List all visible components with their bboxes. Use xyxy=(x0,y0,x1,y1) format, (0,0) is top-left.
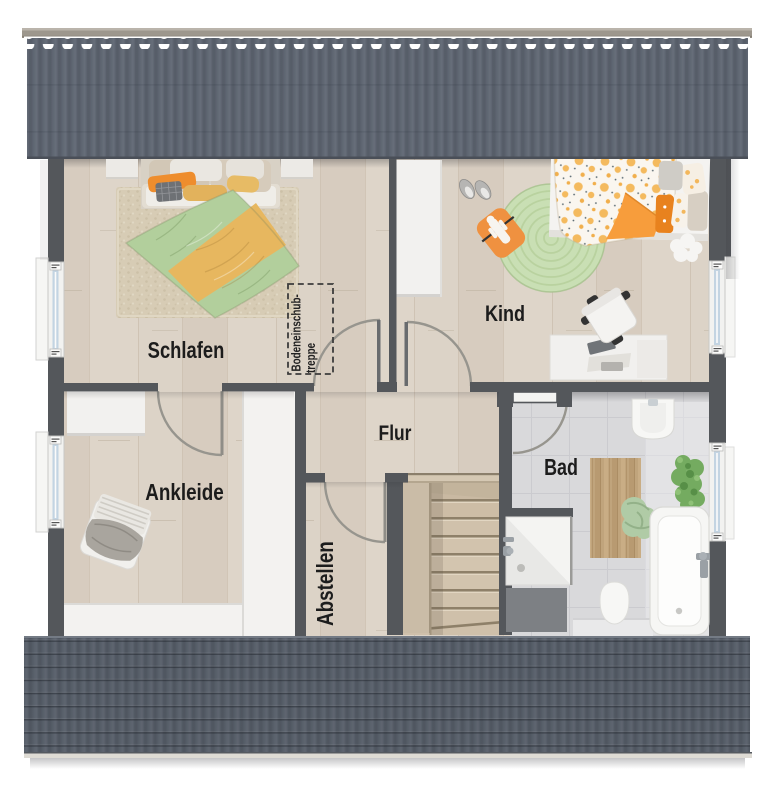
svg-text:Kind: Kind xyxy=(485,302,525,326)
svg-text:Flur: Flur xyxy=(379,423,412,446)
svg-text:Schlafen: Schlafen xyxy=(148,338,225,363)
svg-text:Bodeneinschub-: Bodeneinschub- xyxy=(291,294,304,371)
svg-text:Ankleide: Ankleide xyxy=(145,480,224,505)
svg-text:Abstellen: Abstellen xyxy=(313,541,338,626)
svg-text:treppe: treppe xyxy=(305,343,318,373)
svg-text:Bad: Bad xyxy=(544,455,578,481)
